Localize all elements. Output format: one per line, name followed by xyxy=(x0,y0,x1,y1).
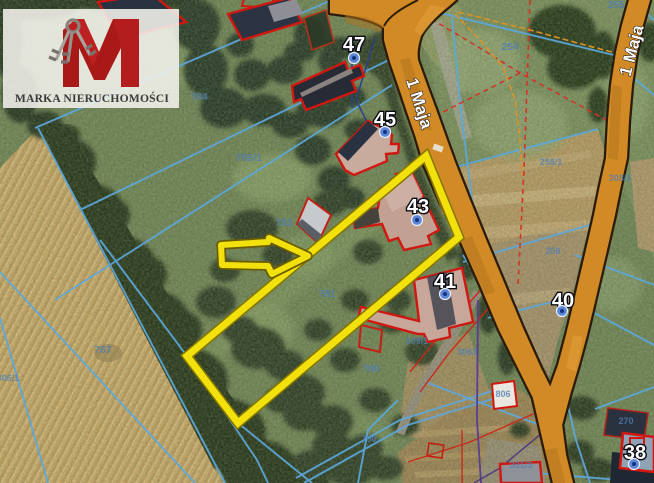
svg-text:270: 270 xyxy=(618,416,633,426)
svg-text:258: 258 xyxy=(545,246,560,256)
svg-text:309/1: 309/1 xyxy=(406,336,429,346)
svg-text:790: 790 xyxy=(361,434,376,444)
svg-text:255: 255 xyxy=(607,0,625,11)
svg-text:782: 782 xyxy=(275,217,293,229)
svg-text:254: 254 xyxy=(501,41,519,53)
svg-text:780: 780 xyxy=(362,363,380,375)
svg-text:308/1: 308/1 xyxy=(609,173,632,183)
svg-text:3063: 3063 xyxy=(457,347,477,357)
svg-text:785/1: 785/1 xyxy=(236,152,262,164)
svg-text:781: 781 xyxy=(318,288,336,300)
svg-text:767: 767 xyxy=(94,344,112,356)
svg-text:331/3: 331/3 xyxy=(510,460,533,470)
svg-text:784: 784 xyxy=(190,91,208,103)
svg-text:MARKA NIERUCHOMOŚCI: MARKA NIERUCHOMOŚCI xyxy=(15,91,169,105)
svg-text:806: 806 xyxy=(495,389,510,399)
svg-text:258/1: 258/1 xyxy=(540,157,563,167)
svg-text:806/1: 806/1 xyxy=(0,373,19,383)
